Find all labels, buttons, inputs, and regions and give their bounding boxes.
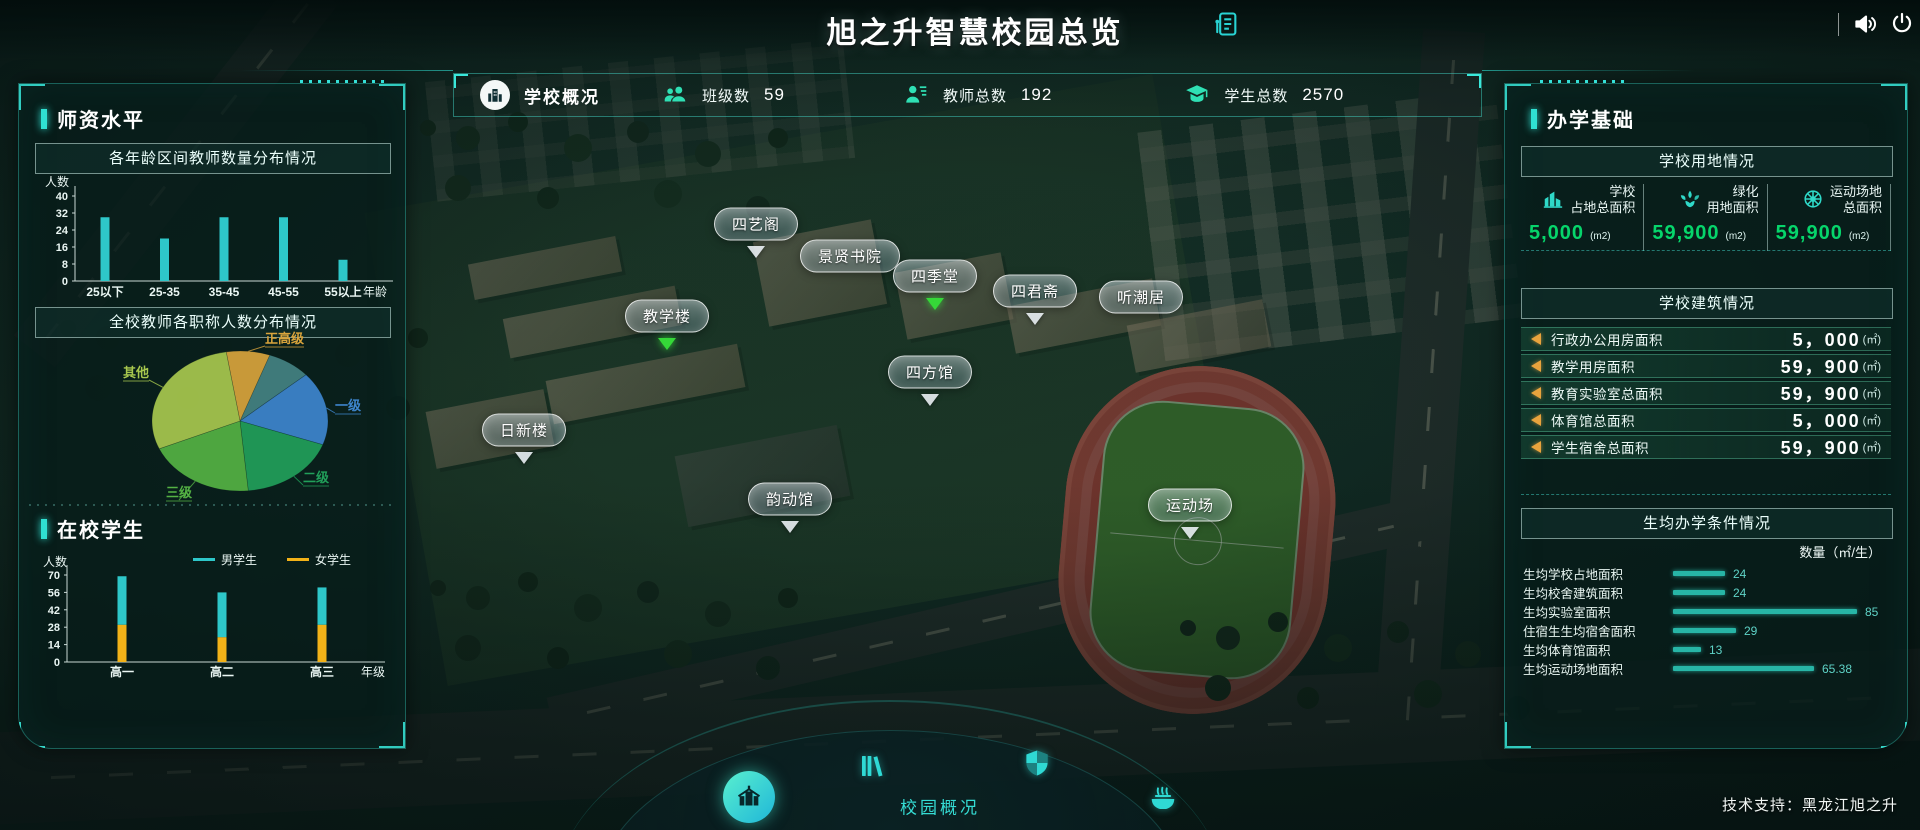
svg-text:42: 42 xyxy=(48,605,60,617)
svg-text:高三: 高三 xyxy=(310,664,334,679)
overview-brand: 学校概况 xyxy=(480,80,600,110)
dotted-divider xyxy=(29,504,395,506)
stat-label: 班级数 xyxy=(702,85,750,106)
teacher-age-bar-chart: 0816243240人数年龄25以下25-3535-4545-5555以上 xyxy=(25,170,397,304)
page-title: 旭之升智慧校园总览 xyxy=(827,8,1124,52)
svg-text:70: 70 xyxy=(48,570,60,582)
svg-text:年龄: 年龄 xyxy=(363,285,387,299)
frame-line xyxy=(1482,70,1695,71)
land-header: 学校用地情况 xyxy=(1521,146,1893,177)
land-stat: 绿化用地面积59,900(m2) xyxy=(1644,184,1767,251)
building-row-label: 教育实验室总面积 xyxy=(1551,383,1663,403)
students-stacked-bar-chart: 男学生女学生01428425670人数年级高一高二高三 xyxy=(25,544,397,694)
building-label[interactable]: 四方馆 xyxy=(888,356,972,389)
smart-campus-dashboard: 旭之升智慧校园总览 学校概况 班级数59教师总数192学生总数2570 四艺阁景… xyxy=(0,0,1920,830)
overview-stat: 班级数59 xyxy=(662,82,785,108)
hud-dots xyxy=(1540,80,1624,83)
percap-bar xyxy=(1673,666,1814,671)
volume-icon[interactable] xyxy=(1852,11,1878,37)
building-row-label: 学生宿舍总面积 xyxy=(1551,437,1649,457)
stat-label: 学生总数 xyxy=(1224,85,1288,106)
building-label[interactable]: 韵动馆 xyxy=(748,483,832,516)
land-stat-value-row: 59,900(m2) xyxy=(1646,222,1758,245)
library-books-icon[interactable] xyxy=(857,751,887,781)
percap-row: 生均实验室面积85 xyxy=(1523,602,1889,621)
stat-label: 教师总数 xyxy=(943,85,1007,106)
building-row-unit: (㎡) xyxy=(1863,385,1881,401)
percap-bar xyxy=(1673,571,1725,576)
svg-text:14: 14 xyxy=(48,640,61,652)
svg-text:0: 0 xyxy=(62,276,68,288)
building-row-value: 5，000 xyxy=(1793,326,1861,352)
percap-bar xyxy=(1673,647,1701,652)
building-row-label: 体育馆总面积 xyxy=(1551,410,1635,430)
land-stat-label: 绿化用地面积 xyxy=(1707,184,1759,216)
teacher-icon xyxy=(903,82,929,108)
svg-text:32: 32 xyxy=(56,208,68,220)
land-stat-value: 59,900 xyxy=(1652,222,1719,245)
dashed-divider xyxy=(1521,250,1891,251)
building-row-value: 59，900 xyxy=(1781,380,1861,406)
land-stats: 学校占地总面积5,000(m2)绿化用地面积59,900(m2)运动场地总面积5… xyxy=(1521,184,1891,251)
building-label[interactable]: 运动场 xyxy=(1148,489,1232,522)
sports-ground-icon xyxy=(1802,188,1824,210)
section-marker xyxy=(41,519,47,539)
svg-text:45-55: 45-55 xyxy=(268,285,299,299)
svg-text:56: 56 xyxy=(48,587,60,599)
percap-bar-list: 生均学校占地面积24生均校舍建筑面积24生均实验室面积85住宿生生均宿舍面积29… xyxy=(1523,564,1889,678)
dock-active-label: 校园概况 xyxy=(900,794,980,819)
map-arrow-icon xyxy=(747,246,765,258)
svg-text:女学生: 女学生 xyxy=(315,552,351,567)
svg-text:三级: 三级 xyxy=(166,485,193,500)
triangle-marker-icon xyxy=(1531,414,1541,426)
building-label[interactable]: 四季堂 xyxy=(893,260,977,293)
percap-bar xyxy=(1673,628,1736,633)
svg-text:高二: 高二 xyxy=(210,664,234,679)
section-title-foundation: 办学基础 xyxy=(1531,104,1635,133)
overview-stat: 学生总数2570 xyxy=(1184,82,1344,108)
building-label[interactable]: 听潮居 xyxy=(1099,281,1183,314)
student-icon xyxy=(1184,82,1210,108)
land-stat-top: 学校占地总面积 xyxy=(1523,184,1635,216)
foundation-panel: 办学基础 学校用地情况 学校占地总面积5,000(m2)绿化用地面积59,900… xyxy=(1504,83,1908,749)
svg-text:一级: 一级 xyxy=(335,398,362,413)
security-shield-icon[interactable] xyxy=(1022,748,1052,778)
building-row: 体育馆总面积5，000(㎡) xyxy=(1521,408,1891,432)
building-row-unit: (㎡) xyxy=(1863,412,1881,428)
building-row-unit: (㎡) xyxy=(1863,358,1881,374)
land-stat-value-row: 5,000(m2) xyxy=(1523,222,1635,245)
building-row: 教学用房面积59，900(㎡) xyxy=(1521,354,1891,378)
percap-row: 住宿生生均宿舍面积29 xyxy=(1523,621,1889,640)
tech-support-text: 技术支持：黑龙江旭之升 xyxy=(1722,794,1898,815)
classes-group-icon xyxy=(662,82,688,108)
land-stat-label: 运动场地总面积 xyxy=(1830,184,1882,216)
section-title-students: 在校学生 xyxy=(41,514,145,543)
stat-value: 59 xyxy=(764,85,785,105)
building-row: 行政办公用房面积5，000(㎡) xyxy=(1521,327,1891,351)
overview-title: 学校概况 xyxy=(524,83,600,108)
building-row-label: 教学用房面积 xyxy=(1551,356,1635,376)
svg-text:男学生: 男学生 xyxy=(221,552,257,567)
document-icon[interactable] xyxy=(1212,10,1240,40)
percap-row: 生均学校占地面积24 xyxy=(1523,564,1889,583)
building-label[interactable]: 教学楼 xyxy=(625,300,709,333)
land-stat-value: 59,900 xyxy=(1776,222,1843,245)
percap-value: 29 xyxy=(1744,624,1757,638)
svg-text:55以上: 55以上 xyxy=(324,284,361,299)
building-row-unit: (㎡) xyxy=(1863,331,1881,347)
overview-stats: 班级数59教师总数192学生总数2570 xyxy=(600,82,1344,108)
percap-label: 生均学校占地面积 xyxy=(1523,564,1673,583)
building-row-value: 59，900 xyxy=(1781,434,1861,460)
stat-value: 2570 xyxy=(1302,85,1344,105)
percap-row: 生均运动场地面积65.38 xyxy=(1523,659,1889,678)
map-arrow-icon xyxy=(1026,313,1044,325)
canteen-bowl-icon[interactable] xyxy=(1148,784,1178,814)
power-icon[interactable] xyxy=(1890,11,1914,37)
map-arrow-icon xyxy=(921,394,939,406)
building-label[interactable]: 四君斋 xyxy=(993,275,1077,308)
svg-text:其他: 其他 xyxy=(123,365,149,380)
percap-row: 生均体育馆面积13 xyxy=(1523,640,1889,659)
land-stat-unit: (m2) xyxy=(1726,231,1747,242)
svg-text:0: 0 xyxy=(54,657,60,669)
svg-text:28: 28 xyxy=(48,622,60,634)
land-stat-value: 5,000 xyxy=(1529,222,1584,245)
svg-text:35-45: 35-45 xyxy=(209,285,240,299)
percap-row: 生均校舍建筑面积24 xyxy=(1523,583,1889,602)
map-arrow-icon xyxy=(515,452,533,464)
school-area-icon xyxy=(1542,188,1564,210)
percap-value: 13 xyxy=(1709,643,1722,657)
percap-axis-label: 数量（㎡/生） xyxy=(1799,542,1881,561)
percap-label: 住宿生生均宿舍面积 xyxy=(1523,621,1673,640)
land-stat: 运动场地总面积59,900(m2) xyxy=(1768,184,1891,251)
svg-text:24: 24 xyxy=(56,225,69,237)
building-row-unit: (㎡) xyxy=(1863,439,1881,455)
faculty-panel: 师资水平 各年龄区间教师数量分布情况 0816243240人数年龄25以下25-… xyxy=(18,83,406,749)
building-label[interactable]: 日新楼 xyxy=(482,414,566,447)
triangle-marker-icon xyxy=(1531,333,1541,345)
faculty-title-text: 师资水平 xyxy=(57,104,145,133)
section-marker xyxy=(41,109,47,129)
triangle-marker-icon xyxy=(1531,360,1541,372)
percap-value: 85 xyxy=(1865,605,1878,619)
building-header: 学校建筑情况 xyxy=(1521,288,1893,319)
building-row: 教育实验室总面积59，900(㎡) xyxy=(1521,381,1891,405)
svg-text:25-35: 25-35 xyxy=(149,285,180,299)
land-stat-unit: (m2) xyxy=(1590,231,1611,242)
building-label[interactable]: 景贤书院 xyxy=(800,240,900,273)
land-stat-top: 运动场地总面积 xyxy=(1770,184,1882,216)
land-stat: 学校占地总面积5,000(m2) xyxy=(1521,184,1644,251)
percap-label: 生均运动场地面积 xyxy=(1523,659,1673,678)
percap-value: 65.38 xyxy=(1822,662,1852,676)
stat-value: 192 xyxy=(1021,85,1052,105)
triangle-marker-icon xyxy=(1531,387,1541,399)
percap-bar xyxy=(1673,609,1857,614)
greenery-icon xyxy=(1679,188,1701,210)
school-overview-bar: 学校概况 班级数59教师总数192学生总数2570 xyxy=(453,73,1482,117)
foundation-title-text: 办学基础 xyxy=(1547,104,1635,133)
land-stat-unit: (m2) xyxy=(1849,231,1870,242)
percap-label: 生均体育馆面积 xyxy=(1523,640,1673,659)
section-marker xyxy=(1531,109,1537,129)
svg-text:16: 16 xyxy=(56,242,68,254)
svg-text:40: 40 xyxy=(56,191,68,203)
building-row: 学生宿舍总面积59，900(㎡) xyxy=(1521,435,1891,459)
svg-text:人数: 人数 xyxy=(43,554,67,569)
svg-text:正高级: 正高级 xyxy=(265,331,305,346)
hud-dots xyxy=(300,80,384,83)
land-stat-value-row: 59,900(m2) xyxy=(1770,222,1882,245)
svg-text:二级: 二级 xyxy=(303,470,330,485)
percap-bar xyxy=(1673,590,1725,595)
building-row-value: 5，000 xyxy=(1793,407,1861,433)
frame-line xyxy=(240,70,453,71)
land-stat-top: 绿化用地面积 xyxy=(1646,184,1758,216)
overview-stat: 教师总数192 xyxy=(903,82,1052,108)
map-arrow-icon xyxy=(1181,527,1199,539)
svg-text:高一: 高一 xyxy=(110,664,134,679)
land-stat-label: 学校占地总面积 xyxy=(1570,184,1635,216)
percap-header: 生均办学条件情况 xyxy=(1521,508,1893,539)
map-arrow-icon xyxy=(658,338,676,350)
percap-value: 24 xyxy=(1733,567,1746,581)
nav-campus-overview-button[interactable] xyxy=(723,771,775,823)
section-title-faculty: 师资水平 xyxy=(41,104,145,133)
percap-value: 24 xyxy=(1733,586,1746,600)
svg-text:年级: 年级 xyxy=(361,665,385,679)
percap-label: 生均实验室面积 xyxy=(1523,602,1673,621)
building-rows: 行政办公用房面积5，000(㎡)教学用房面积59，900(㎡)教育实验室总面积5… xyxy=(1521,327,1891,462)
teacher-rank-pie-chart: 正高级一级二级三级其他 xyxy=(19,329,405,515)
building-row-label: 行政办公用房面积 xyxy=(1551,329,1663,349)
map-arrow-icon xyxy=(926,298,944,310)
campus-building-icon xyxy=(735,781,763,814)
building-row-value: 59，900 xyxy=(1781,353,1861,379)
map-arrow-icon xyxy=(781,521,799,533)
building-label[interactable]: 四艺阁 xyxy=(714,208,798,241)
school-badge-icon xyxy=(480,80,510,110)
percap-label: 生均校舍建筑面积 xyxy=(1523,583,1673,602)
students-title-text: 在校学生 xyxy=(57,514,145,543)
triangle-marker-icon xyxy=(1531,441,1541,453)
dashed-divider xyxy=(1521,494,1891,495)
header-divider xyxy=(1838,13,1839,36)
svg-text:8: 8 xyxy=(62,259,68,271)
svg-text:25以下: 25以下 xyxy=(86,285,123,299)
svg-text:人数: 人数 xyxy=(45,174,69,189)
